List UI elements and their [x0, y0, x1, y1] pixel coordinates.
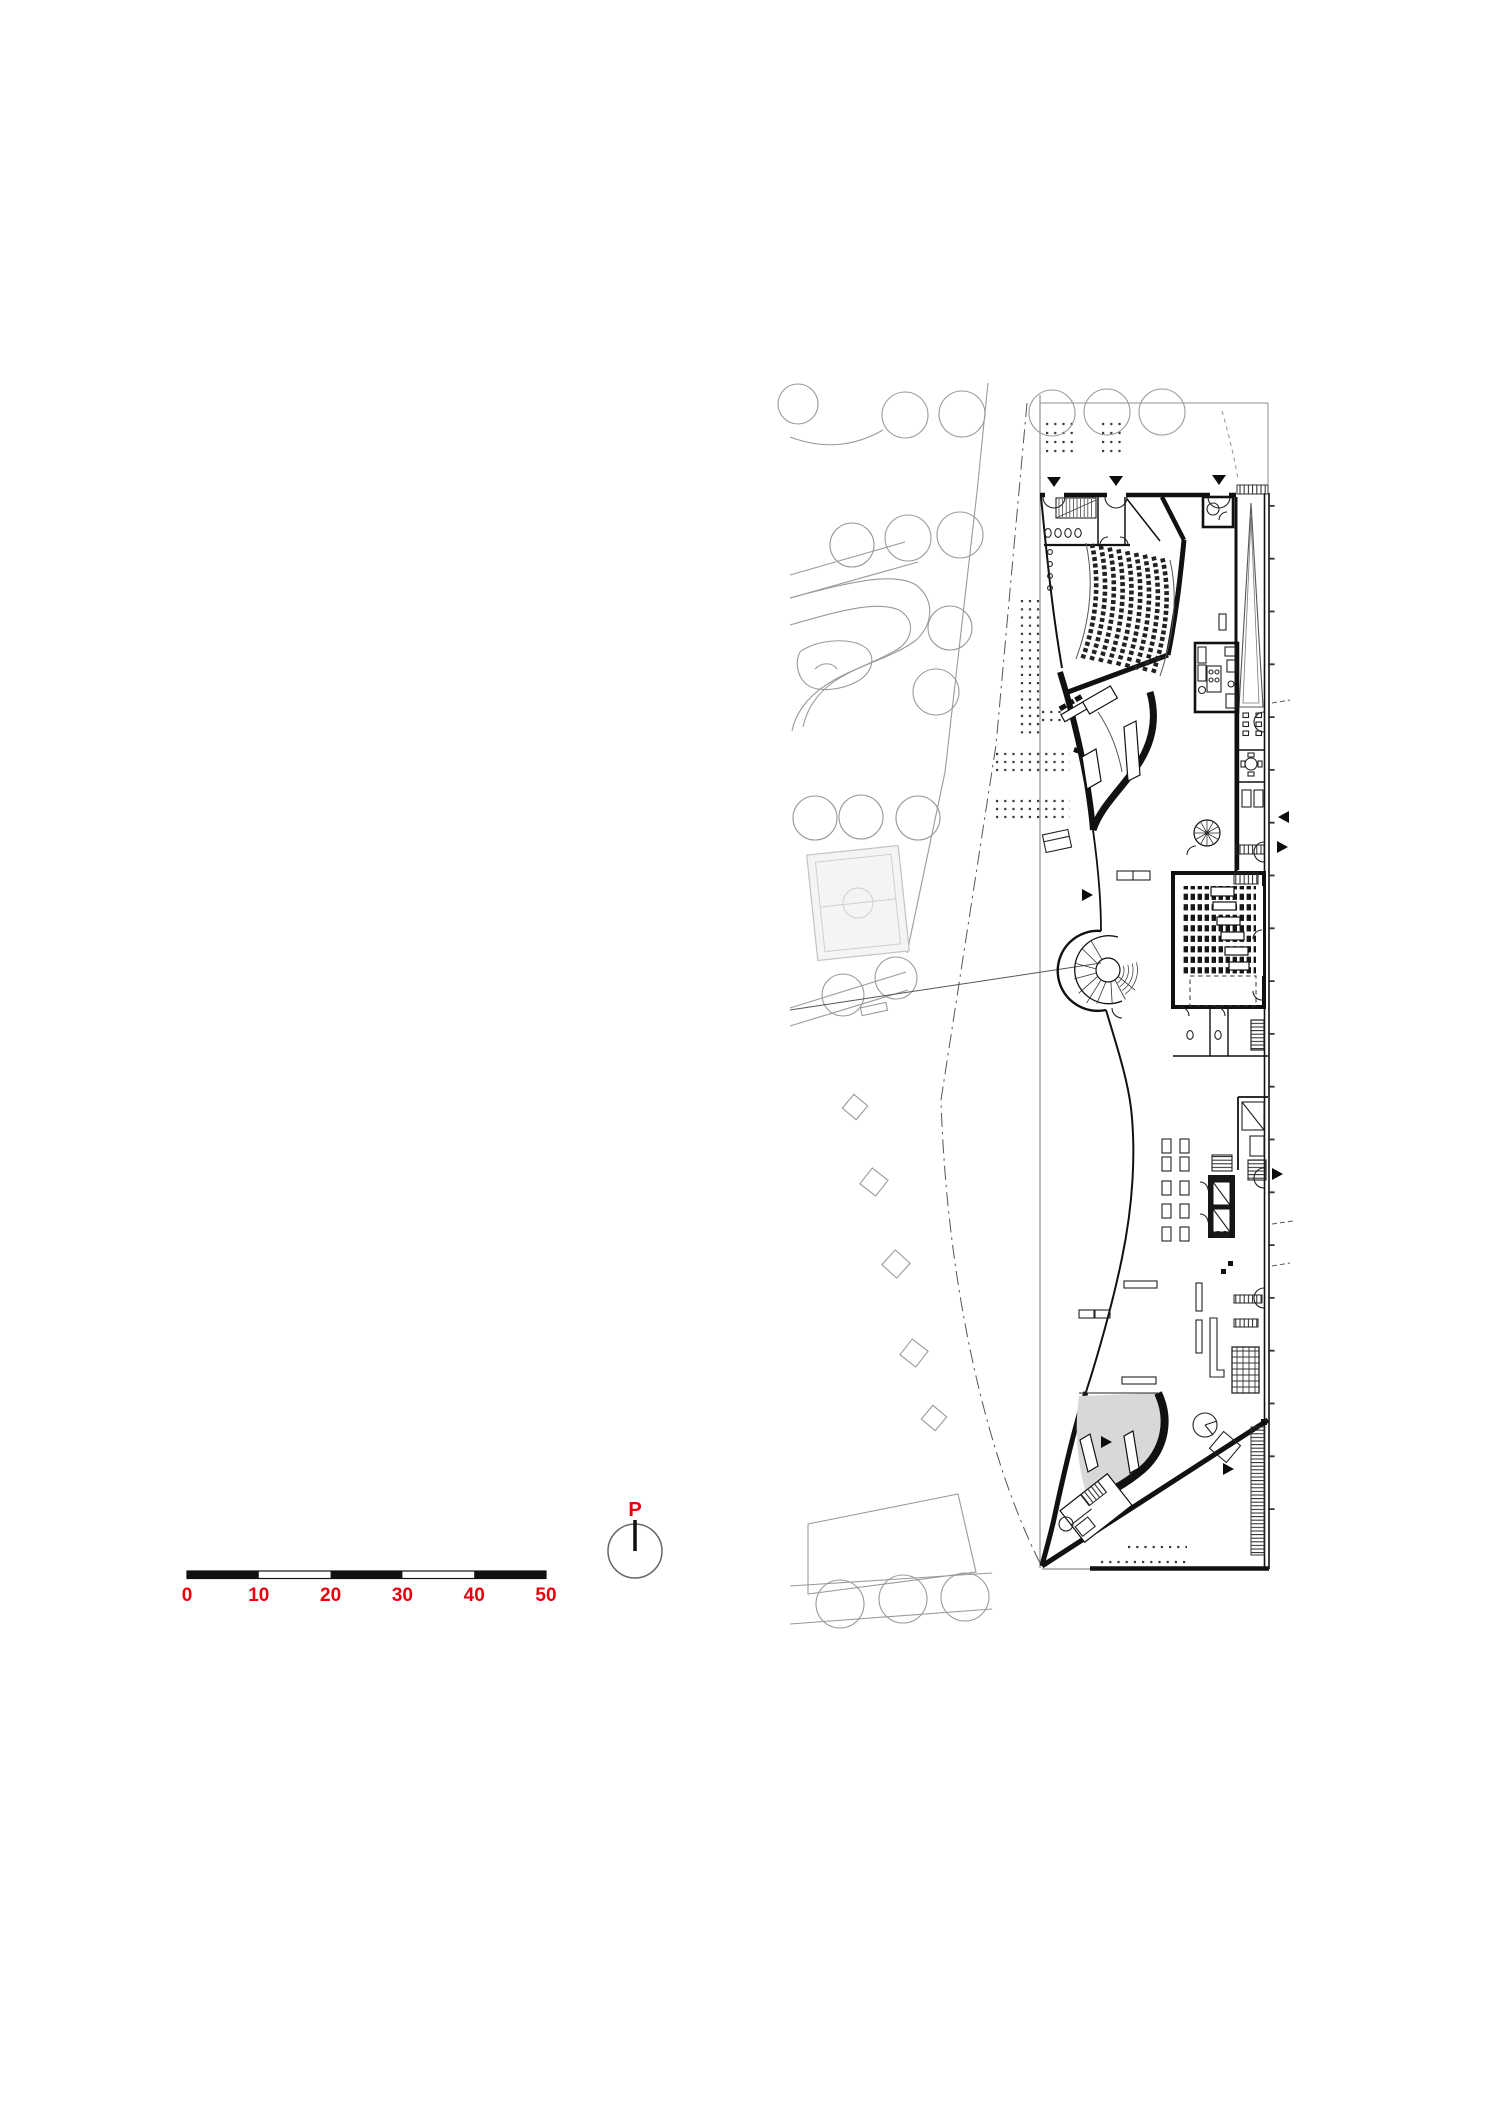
plaza-dot-grids [996, 424, 1187, 1562]
scale-bar: 0 10 20 30 40 50 [182, 1571, 557, 1606]
site-boundary-lines [790, 395, 1268, 1568]
street-edge [790, 1573, 992, 1586]
park-contour [797, 641, 872, 690]
tree [778, 384, 818, 424]
door-swing [1187, 846, 1196, 855]
entrance-arrow [1223, 1463, 1234, 1475]
tree [875, 957, 917, 999]
rooms-below-aud2 [1173, 1007, 1268, 1180]
west-facade-upper [1041, 497, 1062, 668]
north-symbol: P [608, 1499, 662, 1578]
scale-bar-segment [474, 1571, 546, 1579]
reading-tables [1162, 1139, 1189, 1241]
park-contour [790, 579, 930, 731]
scale-label-30: 30 [392, 1585, 413, 1606]
street-edge [790, 1609, 992, 1624]
tree [793, 796, 837, 840]
scale-label-50: 50 [535, 1585, 556, 1606]
pod-table [1124, 721, 1140, 781]
pod-floor-line [1098, 712, 1122, 772]
plaza-trees [1029, 389, 1185, 436]
scale-label-40: 40 [464, 1585, 485, 1606]
auditorium-2 [1173, 873, 1264, 1007]
sofa [1242, 790, 1251, 807]
entrance-arrow [1109, 476, 1123, 486]
tree [941, 1573, 989, 1621]
west-facade-lower [1086, 1010, 1133, 1392]
park-boundary [907, 383, 988, 953]
entry-tree [1193, 1413, 1217, 1437]
tree [937, 512, 983, 558]
park-area [778, 383, 988, 1026]
l-counter [1210, 1318, 1224, 1377]
long-table [1236, 845, 1264, 854]
entrance-arrow [1047, 477, 1061, 487]
ramp-triangle-outer [1239, 503, 1263, 707]
aud1-ne-wall [1162, 497, 1184, 540]
shop-shelves [1232, 1347, 1259, 1393]
tree [830, 523, 874, 567]
elevator-core [1200, 1155, 1235, 1238]
park-contour [815, 664, 837, 669]
tree [839, 795, 883, 839]
planter-squares [842, 1094, 946, 1430]
stair-flight [1212, 1155, 1232, 1171]
circular-stair-pod [1074, 936, 1137, 1018]
chairs [1243, 713, 1262, 736]
tree [939, 391, 985, 437]
splayed-partition [1127, 499, 1160, 541]
park-bench [860, 1002, 887, 1015]
drawing-sheet: 0 10 20 30 40 50 P [0, 0, 1500, 2122]
planter [860, 1168, 888, 1196]
tree [882, 392, 928, 438]
entrance-arrow [1278, 811, 1289, 823]
street-block [790, 1494, 992, 1628]
ramp-triangle-inner [1243, 517, 1259, 703]
stair-treads [1074, 941, 1135, 1004]
round-table [1241, 753, 1262, 776]
east-corridor [1236, 497, 1263, 872]
scale-label-20: 20 [320, 1585, 341, 1606]
servery-counter [1219, 614, 1226, 630]
wc-fixtures [1045, 529, 1128, 545]
sight-line [790, 963, 1101, 1010]
tree [928, 606, 972, 650]
sofa [1254, 790, 1263, 807]
planter [882, 1250, 910, 1278]
west-facade-mid [1093, 830, 1101, 931]
tree [1139, 389, 1185, 435]
stair-circle-inner [1096, 958, 1120, 982]
pod-wall-right [1093, 692, 1153, 830]
tree [913, 669, 959, 715]
property-boundary-dashdot [941, 403, 1040, 1563]
exterior-dash [1272, 1263, 1290, 1266]
scale-label-0: 0 [182, 1585, 193, 1606]
aud1-south-wall [1068, 655, 1168, 692]
planter [900, 1339, 928, 1367]
tree [1029, 390, 1075, 436]
stair-circle-outer [1075, 936, 1122, 1004]
spiral-stair [1187, 820, 1220, 855]
park-path [790, 430, 883, 445]
north-label: P [628, 1499, 641, 1521]
entrance-grille [1237, 485, 1268, 494]
stair-flight [1251, 1020, 1264, 1050]
aud2-back-counter [1234, 873, 1258, 884]
park-contour [790, 606, 911, 727]
planter [842, 1094, 867, 1119]
staircase-top [1056, 498, 1096, 518]
tree [896, 796, 940, 840]
door-swing [1200, 1182, 1208, 1222]
sports-field [807, 845, 910, 960]
scale-label-10: 10 [248, 1585, 269, 1606]
kitchen-block [1195, 614, 1238, 712]
park-bottom-edge-2 [790, 990, 908, 1026]
planter [921, 1405, 946, 1430]
top-service-strip [1044, 497, 1233, 545]
scale-bar-segment [331, 1571, 403, 1579]
auditorium-1 [1048, 497, 1184, 722]
canopy-dashed-arc [1222, 411, 1238, 479]
entrance-arrow [1277, 841, 1288, 853]
door-swing [1112, 1008, 1122, 1018]
park-bottom-edge [790, 972, 906, 1008]
stair-flight [1248, 1160, 1266, 1180]
pod-room [1073, 692, 1153, 830]
building [1040, 475, 1293, 1569]
exterior-dash [1272, 700, 1290, 703]
tree [1084, 389, 1130, 435]
entrance-arrow [1272, 1168, 1283, 1180]
site-plan-svg: 0 10 20 30 40 50 P [0, 0, 1500, 2122]
exterior-ramp [1251, 1427, 1264, 1555]
aud2-stage-dashed [1190, 976, 1256, 1006]
tree [885, 515, 931, 561]
exterior-dash [1272, 1221, 1293, 1224]
entrance-arrow [1082, 889, 1093, 901]
entrance-arrow [1212, 475, 1226, 485]
south-wedge [1059, 1393, 1267, 1555]
scale-bar-segment [187, 1571, 259, 1579]
